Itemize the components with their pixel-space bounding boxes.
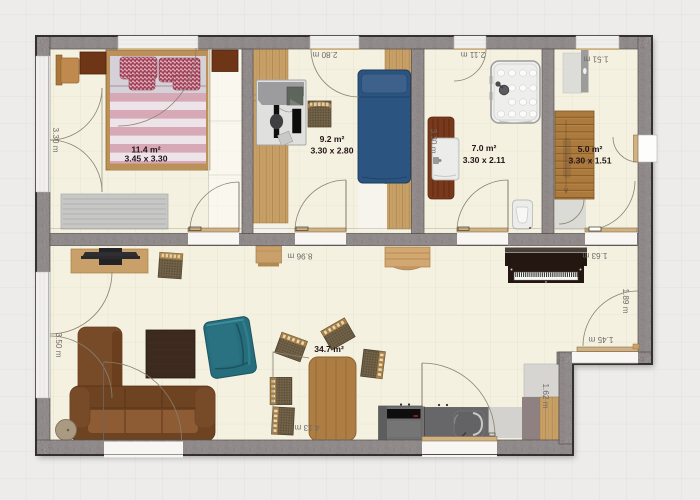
svg-text:3.30 m: 3.30 m <box>51 127 60 152</box>
svg-text:4.13 m: 4.13 m <box>294 423 319 432</box>
svg-text:3.30 x 1.51: 3.30 x 1.51 <box>568 156 611 166</box>
svg-text:2.80 m: 2.80 m <box>312 50 337 59</box>
svg-text:3.30 x 2.11: 3.30 x 2.11 <box>463 155 506 165</box>
svg-text:1.89 m: 1.89 m <box>621 288 630 313</box>
svg-text:1.45 m: 1.45 m <box>588 335 613 344</box>
svg-text:1.62 m: 1.62 m <box>541 383 550 408</box>
svg-text:1.51 m: 1.51 m <box>583 55 608 64</box>
svg-text:8.96 m: 8.96 m <box>287 252 312 261</box>
svg-text:3.45 x 3.30: 3.45 x 3.30 <box>124 154 167 164</box>
svg-text:1.63 m: 1.63 m <box>582 251 607 260</box>
svg-text:7.0 m²: 7.0 m² <box>472 143 497 153</box>
svg-text:3.50 m: 3.50 m <box>54 332 63 357</box>
svg-text:3.30 m: 3.30 m <box>429 128 438 153</box>
svg-text:3.30 x 2.80: 3.30 x 2.80 <box>310 146 353 156</box>
svg-text:2.11 m: 2.11 m <box>461 50 486 59</box>
svg-text:5.0 m²: 5.0 m² <box>578 144 603 154</box>
svg-text:9.2 m²: 9.2 m² <box>320 134 345 144</box>
svg-text:34.7 m²: 34.7 m² <box>314 344 344 354</box>
